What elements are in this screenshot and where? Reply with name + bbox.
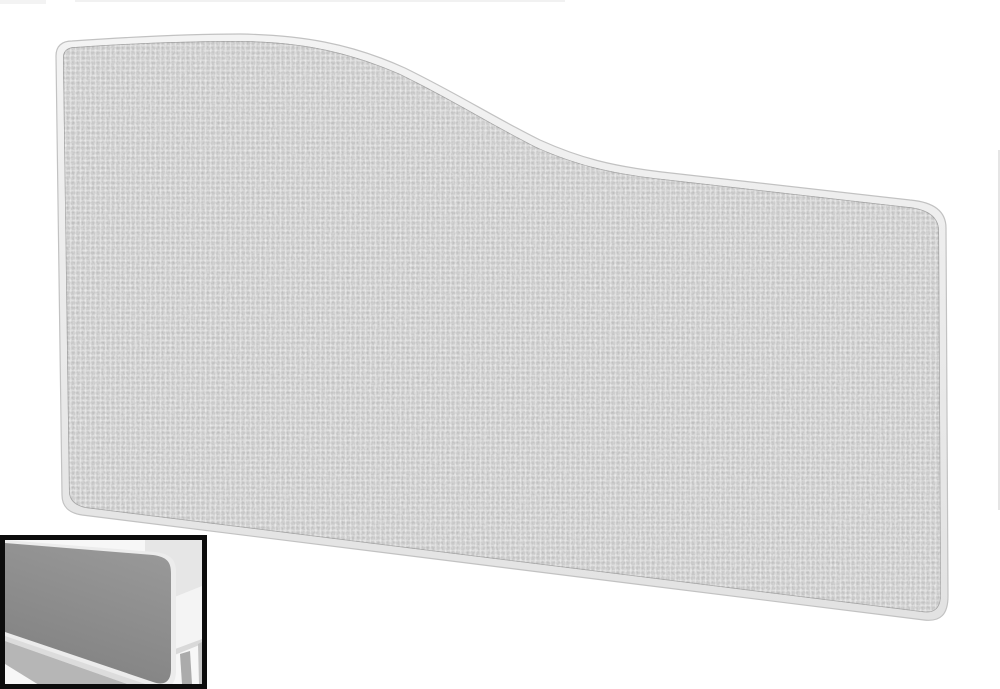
mounted-screen-thumbnail [0, 535, 207, 689]
desk-leg [180, 651, 192, 684]
product-screenshot [0, 0, 1000, 689]
